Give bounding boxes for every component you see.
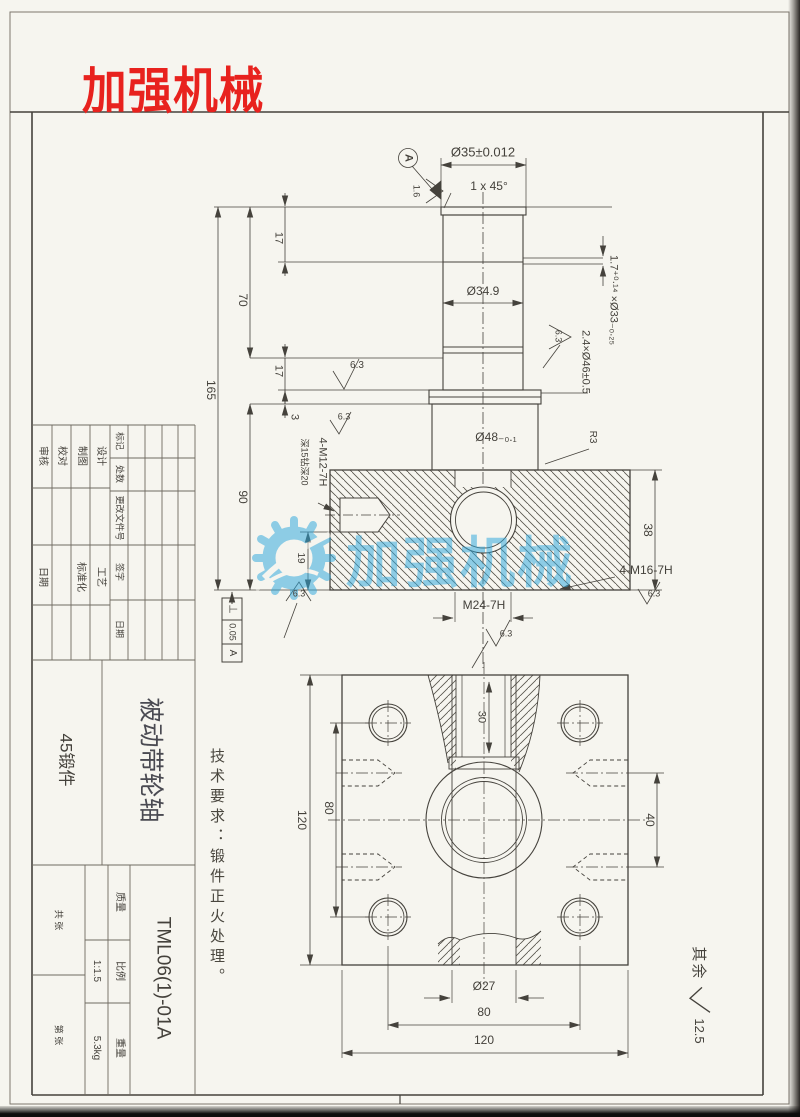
tb-rev-qianzi: 签字 — [115, 563, 124, 581]
dim-3: 3 — [289, 414, 300, 420]
default-roughness-value: 12.5 — [693, 1018, 708, 1043]
roughness-check-icon — [688, 985, 712, 1013]
tb-role-sheji: 设计 — [95, 446, 105, 466]
scan-edge-right — [788, 0, 800, 1117]
tb-role-jiaodui: 校对 — [56, 446, 66, 466]
fcf-datum: A — [227, 650, 237, 657]
dim-17-low: 17 — [273, 365, 284, 377]
dim-groove-flange: 2.4×Ø46±0.5 — [580, 330, 591, 394]
roughness-1-6: 1.6 — [412, 185, 421, 198]
tb-material: 45锻件 — [58, 734, 75, 787]
roughness-m24: 6.3 — [500, 630, 513, 639]
datum-label: A — [403, 154, 414, 162]
dim-dia35: Ø35±0.012 — [451, 146, 515, 159]
tb-weight-value: 5.3kg — [91, 1036, 101, 1060]
tb-role-zhitu: 制图 — [76, 446, 86, 466]
scanned-drawing-sheet: 加强机械 加强机械 Ø35±0.012 1 x 45° A 1.6 Ø34.9 … — [0, 0, 800, 1117]
tb-rev-file-no: 更改文件号 — [115, 495, 124, 540]
annotation-layer: 加强机械 Ø35±0.012 1 x 45° A 1.6 Ø34.9 1.7⁺⁰… — [0, 0, 800, 1117]
note-4-m12: 4-M12-7H — [317, 438, 328, 487]
dim-chamfer: 1 x 45° — [470, 180, 508, 192]
dim-120-left: 120 — [296, 810, 308, 830]
default-roughness-prefix: 其余 — [690, 946, 711, 980]
tb-drawing-no: TML06(1)-01A — [154, 917, 173, 1040]
default-roughness: 其余 12.5 — [688, 946, 712, 1043]
roughness-m12: 6.3 — [338, 413, 351, 422]
dim-80-left: 80 — [323, 801, 335, 814]
dim-dia34-9: Ø34.9 — [467, 285, 500, 297]
dim-80-bottom: 80 — [477, 1006, 490, 1018]
dim-38: 38 — [642, 523, 654, 536]
technical-requirements: 技术要求：锻件正火处理。 — [206, 748, 227, 988]
note-4-m16: 4-M16-7H — [619, 564, 672, 576]
dim-dia27: Ø27 — [473, 980, 496, 992]
tb-role-biaozhunhua: 标准化 — [75, 562, 85, 592]
tb-rev-biaoji: 标记 — [115, 432, 124, 450]
roughness-bottom-left: 6.3 — [293, 590, 306, 599]
dim-r3: R3 — [587, 431, 597, 444]
dim-30: 30 — [476, 711, 487, 723]
scan-edge-bottom — [0, 1106, 800, 1117]
dim-70: 70 — [237, 293, 249, 306]
dim-17-top: 17 — [273, 232, 284, 244]
tb-scale-label: 比例 — [114, 961, 124, 981]
tb-rev-riqi: 日期 — [115, 620, 124, 638]
tb-rev-chushu: 处数 — [115, 465, 124, 483]
roughness-step: 6.3 — [350, 361, 364, 371]
company-logo: 加强机械 — [82, 52, 264, 123]
roughness-groove: 6.3 — [554, 330, 563, 343]
tb-mass-label: 质量 — [114, 892, 124, 912]
tb-role-gongyi: 工艺 — [95, 567, 105, 587]
dim-19: 19 — [295, 552, 305, 563]
note-m24: M24-7H — [463, 599, 506, 611]
fcf-symbol: ⊥ — [227, 604, 238, 614]
dim-90: 90 — [237, 490, 249, 503]
dim-165: 165 — [205, 380, 217, 400]
dim-dia48: Ø48₋₀.₁ — [475, 431, 516, 443]
tb-sheet-no: 第 张 — [54, 1025, 63, 1046]
roughness-m16: 6.3 — [648, 590, 661, 599]
tb-scale-value: 1:1.5 — [91, 960, 101, 982]
tb-role-riqi: 日期 — [37, 567, 47, 587]
tb-part-name: 被动带轮轴 — [138, 697, 163, 822]
tb-weight-label: 重量 — [114, 1038, 124, 1058]
dim-120-bottom: 120 — [474, 1034, 494, 1046]
tb-role-shenhe: 审核 — [37, 446, 47, 466]
dim-groove-top: 1.7⁺⁰·¹⁴ ×Ø33₋₀.₂₅ — [608, 255, 619, 345]
fcf-tolerance: 0.05 — [228, 623, 237, 641]
note-m12-depth: 深15钻深20 — [300, 438, 309, 485]
tb-sheet-total: 共 张 — [54, 910, 63, 931]
dim-40: 40 — [644, 813, 656, 826]
